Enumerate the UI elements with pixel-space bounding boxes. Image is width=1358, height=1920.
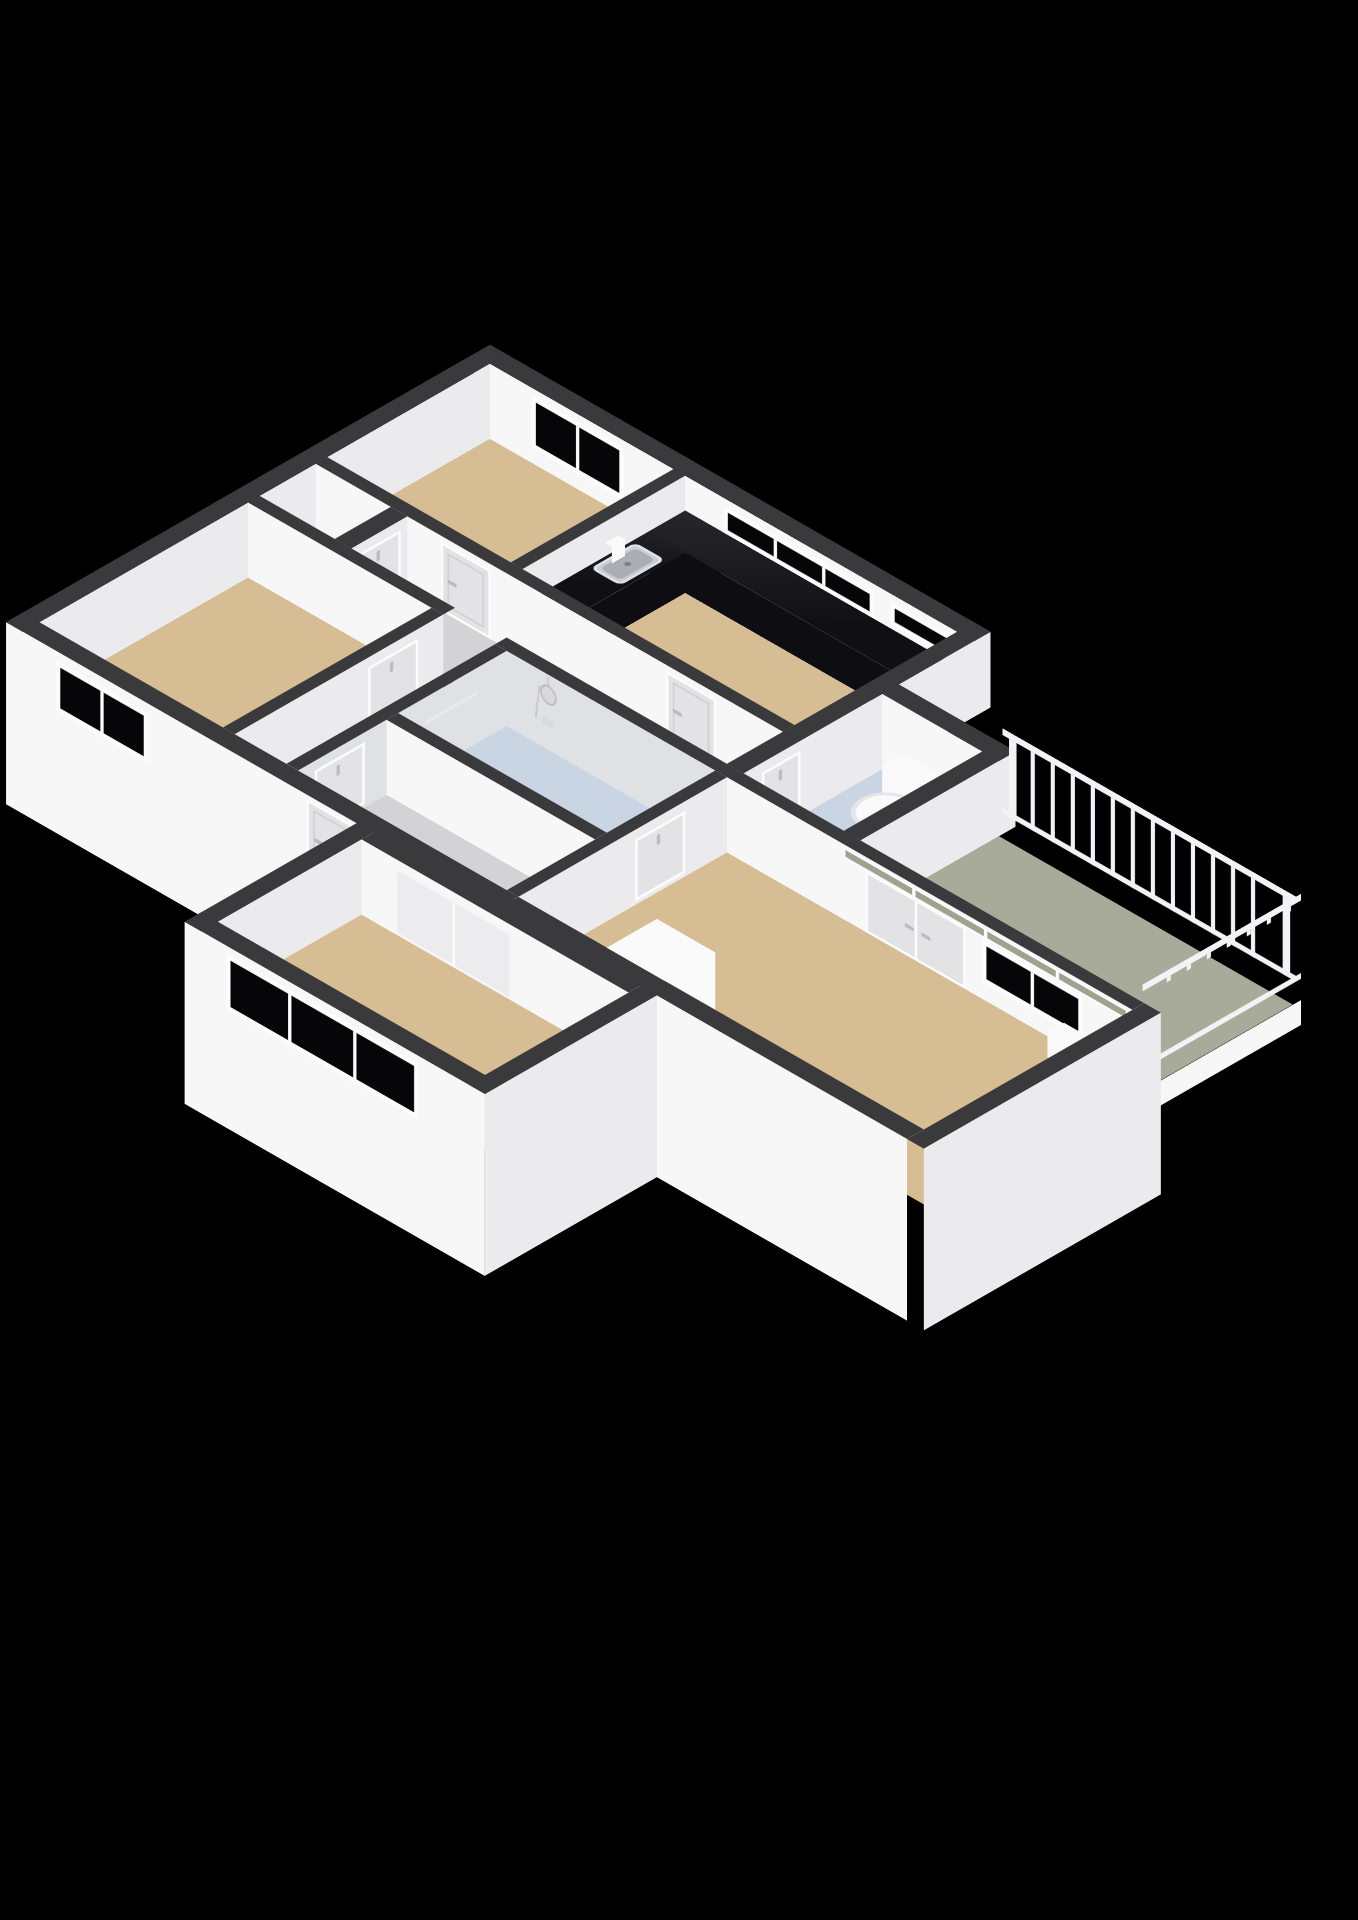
baluster (1071, 774, 1075, 855)
shower-head (540, 681, 557, 710)
baluster (1247, 929, 1251, 936)
baluster (1167, 975, 1171, 982)
window-mullion (576, 426, 579, 470)
wall-bottomwing-east (468, 1055, 668, 1170)
baluster (1227, 941, 1231, 948)
door-handle (336, 764, 339, 777)
window-mullion (1056, 971, 1059, 980)
door-handle (377, 550, 380, 563)
window-mullion (353, 1031, 356, 1079)
baluster (1031, 751, 1035, 832)
window-mullion (288, 994, 291, 1042)
balcony-railing-se (1137, 997, 1301, 1091)
door-handle (390, 661, 393, 674)
shower-mixer (542, 715, 554, 728)
window-mullion (984, 929, 987, 938)
door-handle (921, 932, 930, 941)
baluster (1187, 964, 1191, 971)
floorplan-stage (0, 0, 1358, 1920)
door-handle (657, 833, 660, 846)
window-mullion (912, 888, 915, 897)
baluster (1211, 855, 1215, 936)
baluster (1111, 797, 1115, 878)
baluster (1287, 906, 1291, 913)
towel-rail (425, 690, 478, 724)
baluster (1151, 820, 1155, 901)
baluster (1171, 832, 1175, 913)
baluster (1191, 843, 1195, 924)
window-mullion (100, 691, 103, 734)
baluster (1207, 952, 1211, 959)
shower-hose (535, 685, 540, 719)
window-mullion (774, 539, 777, 558)
door-handle (779, 769, 782, 782)
door-panel (447, 553, 484, 628)
window-mullion (1031, 972, 1034, 1007)
door-handle (905, 923, 914, 932)
baluster (1091, 786, 1095, 867)
sliding-door-split (452, 902, 455, 965)
baluster (1051, 763, 1055, 844)
double-door-split (915, 901, 918, 958)
baluster (1009, 739, 1017, 822)
window-mullion (822, 567, 825, 586)
baluster (1267, 918, 1271, 925)
baluster (1131, 809, 1135, 890)
